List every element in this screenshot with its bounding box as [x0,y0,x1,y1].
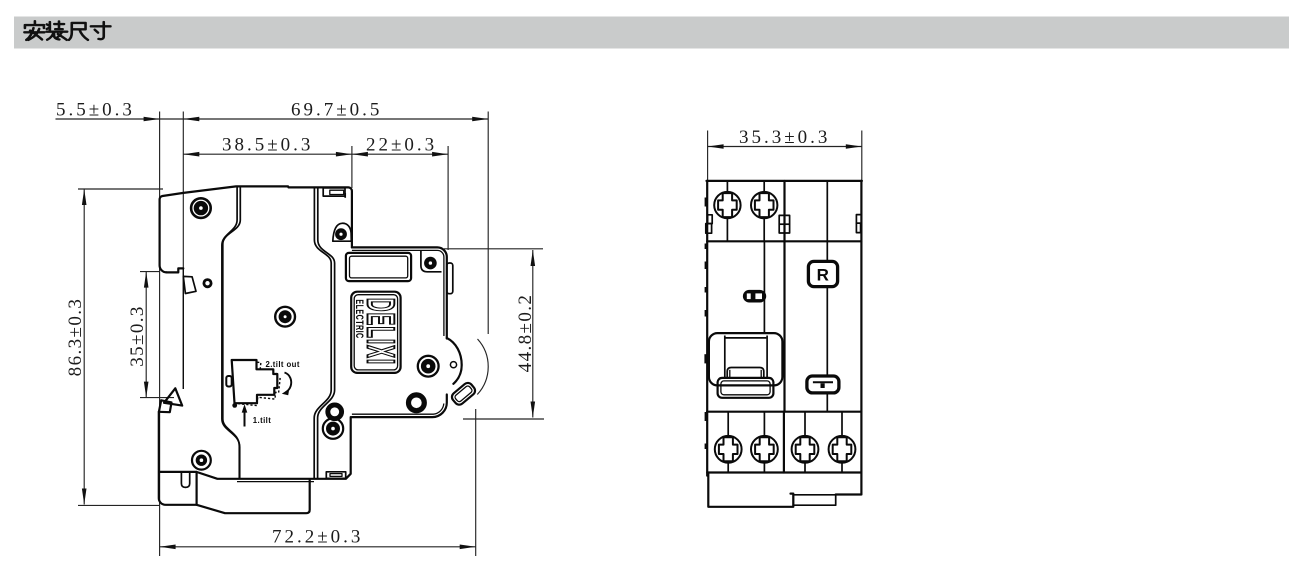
svg-text:ELECTRIC: ELECTRIC [353,299,366,338]
svg-text:2.tilt out: 2.tilt out [266,360,300,369]
svg-text:44.8±0.2: 44.8±0.2 [515,294,536,373]
svg-text:35±0.3: 35±0.3 [127,305,148,367]
svg-text:35.3±0.3: 35.3±0.3 [739,127,830,148]
svg-text:72.2±0.3: 72.2±0.3 [272,527,363,548]
svg-text:R: R [817,266,829,285]
svg-text:69.7±0.5: 69.7±0.5 [291,99,382,120]
svg-text:38.5±0.3: 38.5±0.3 [222,135,313,156]
svg-text:86.3±0.3: 86.3±0.3 [65,298,86,377]
svg-text:22±0.3: 22±0.3 [366,135,437,156]
svg-text:1.tilt: 1.tilt [253,416,271,425]
svg-text:5.5±0.3: 5.5±0.3 [56,99,135,120]
